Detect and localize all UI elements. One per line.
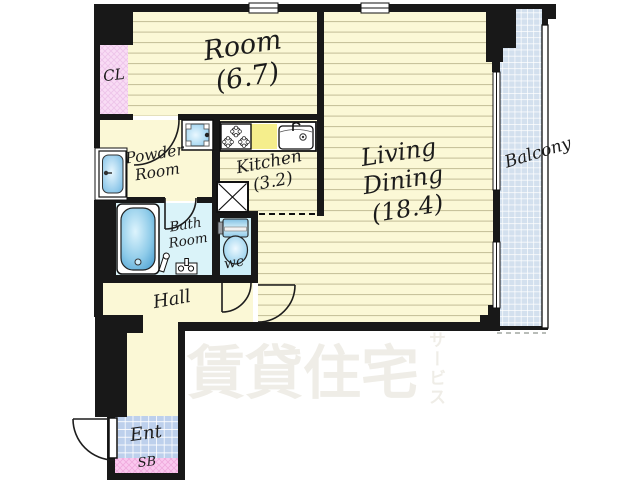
window-icon <box>361 3 389 13</box>
closet-label: CL <box>95 65 133 86</box>
window-icon <box>493 242 500 308</box>
balcony-railing <box>542 25 548 328</box>
wall-block-corridor <box>95 333 127 417</box>
wall-room-ld-divider <box>317 4 324 216</box>
wall-wc-right <box>251 211 258 283</box>
wall-block-corridor-top <box>95 315 143 333</box>
wall-bath-divider-right <box>197 197 212 203</box>
window-icon <box>249 3 278 13</box>
door-swing-icon-entrance <box>73 418 117 460</box>
wall-bath-bottom <box>94 275 258 283</box>
floor-plan: 賃貸住宅 サービス <box>0 0 640 480</box>
wall-top <box>94 4 497 12</box>
living-dining-floor-ext <box>258 216 324 323</box>
kitchen-counter-yellow <box>251 124 277 149</box>
closet-name: CL <box>95 65 133 86</box>
hall-corridor-upper <box>143 320 178 334</box>
hall-corridor-floor <box>127 333 178 417</box>
wall-balcony-corner-a <box>542 4 556 19</box>
wall-bottom-entrance <box>107 473 185 480</box>
wall-bottom-main <box>178 322 500 331</box>
wall-ld-right-stub <box>492 62 500 72</box>
wall-ld-right-block-a <box>486 4 516 48</box>
gas-stove-icon <box>221 124 251 149</box>
wall-corridor-right <box>178 322 185 480</box>
window-icon <box>493 72 500 190</box>
wall-left-bath <box>94 200 116 283</box>
wall-room-bottom-left <box>94 114 133 120</box>
wall-ld-right-mid <box>493 190 500 242</box>
wall-left-hall <box>94 283 103 317</box>
wall-ld-right-block-b <box>486 48 503 62</box>
wall-room-bottom-right <box>178 114 324 120</box>
wall-balcony-bottom <box>500 326 548 330</box>
